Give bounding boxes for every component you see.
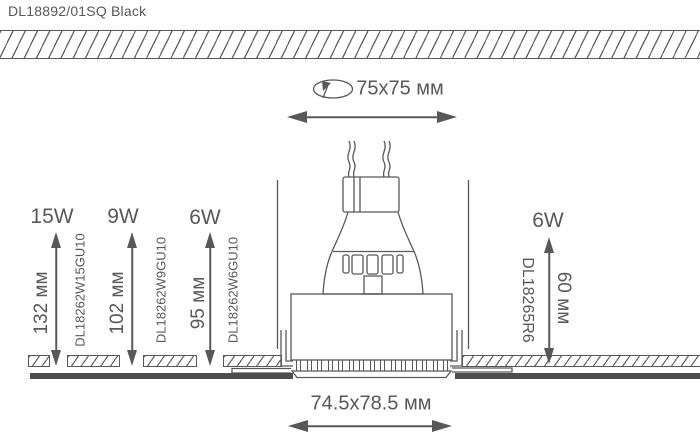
lamp-code-label: DL18262W15GU10: [73, 233, 88, 346]
module-height-label: 60 мм: [552, 272, 574, 325]
rotate-icon: [308, 76, 356, 103]
mounting-bracket-left: [281, 330, 293, 366]
cutout-width-arrow: [287, 110, 457, 124]
wire: [383, 141, 385, 177]
ceiling-cross-section-top: [0, 30, 700, 59]
lamp-height-label: 102 мм: [107, 271, 129, 334]
wire: [348, 141, 350, 177]
hatch-segment: [223, 355, 282, 367]
installation-diagram: DL18892/01SQ Black 75x75 мм: [0, 0, 700, 437]
hatch-segment: [67, 355, 120, 367]
product-title: DL18892/01SQ Black: [8, 3, 146, 19]
lamp-code-label: DL18262W9GU10: [154, 237, 169, 343]
mounting-bracket-right: [450, 330, 462, 366]
fixture-drawing: [0, 0, 700, 437]
lamp-code-label: DL18262W6GU10: [226, 237, 241, 343]
cutout-size-label: 75x75 мм: [356, 78, 444, 101]
hatch-segment: [462, 355, 700, 367]
trim-teeth: [296, 360, 448, 371]
lamp-height-label: 132 мм: [31, 271, 53, 334]
lamp-power-label: 9W: [107, 205, 139, 229]
hatch-segment: [143, 355, 197, 367]
lamp-socket: [343, 177, 399, 212]
fixture-housing: [291, 294, 452, 360]
overall-width-arrow: [288, 419, 452, 433]
module-power-label: 6W: [532, 209, 564, 233]
hatch-segment: [28, 355, 50, 367]
trim-bezel: [292, 371, 451, 378]
ceiling-surface-right: [455, 373, 700, 379]
overall-size-label: 74.5x78.5 мм: [311, 393, 432, 416]
lamp-power-label: 15W: [30, 205, 73, 229]
ceiling-surface-left: [30, 373, 293, 379]
lamp-power-label: 6W: [189, 206, 221, 230]
lamp-height-label: 95 мм: [188, 277, 210, 330]
lamp-bulb: [323, 212, 423, 294]
module-code-label: DL18265R6: [518, 257, 536, 342]
